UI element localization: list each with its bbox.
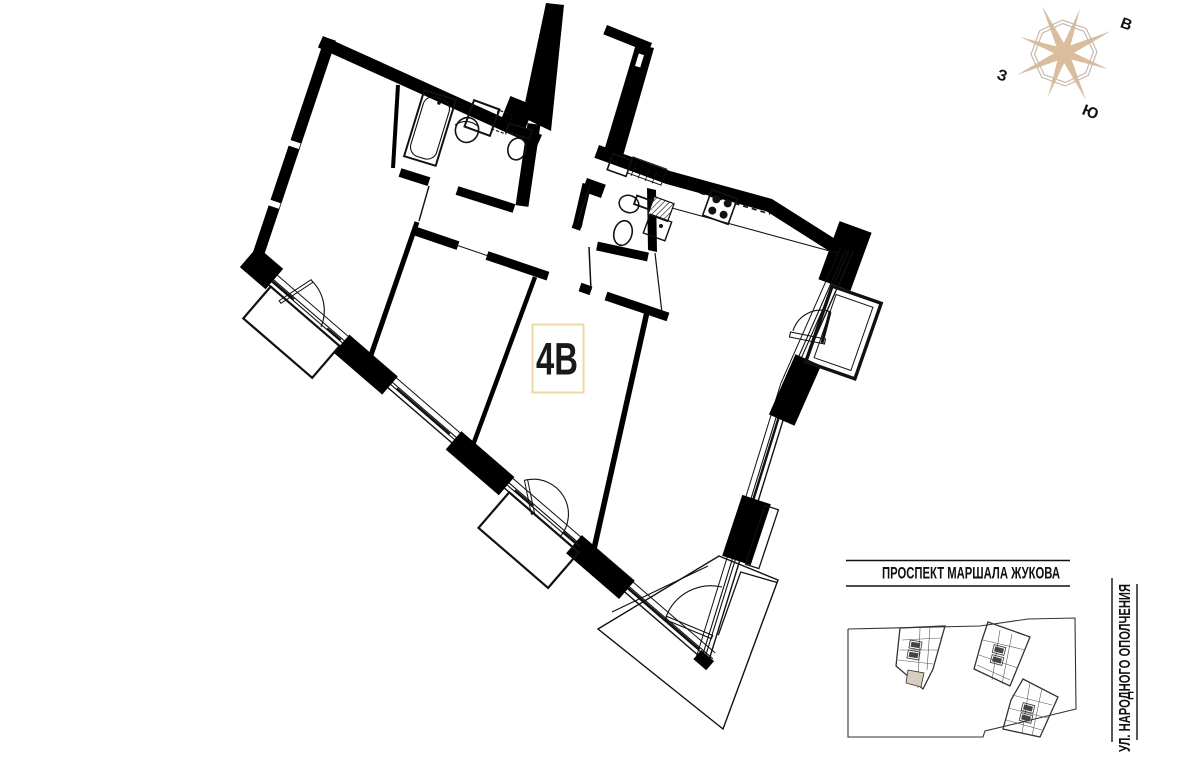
svg-text:УЛ. НАРОДНОГО ОПОЛЧЕНИЯ: УЛ. НАРОДНОГО ОПОЛЧЕНИЯ [1117, 584, 1134, 752]
svg-text:ПРОСПЕКТ МАРШАЛА ЖУКОВА: ПРОСПЕКТ МАРШАЛА ЖУКОВА [882, 565, 1060, 583]
svg-text:4B: 4B [536, 335, 578, 385]
